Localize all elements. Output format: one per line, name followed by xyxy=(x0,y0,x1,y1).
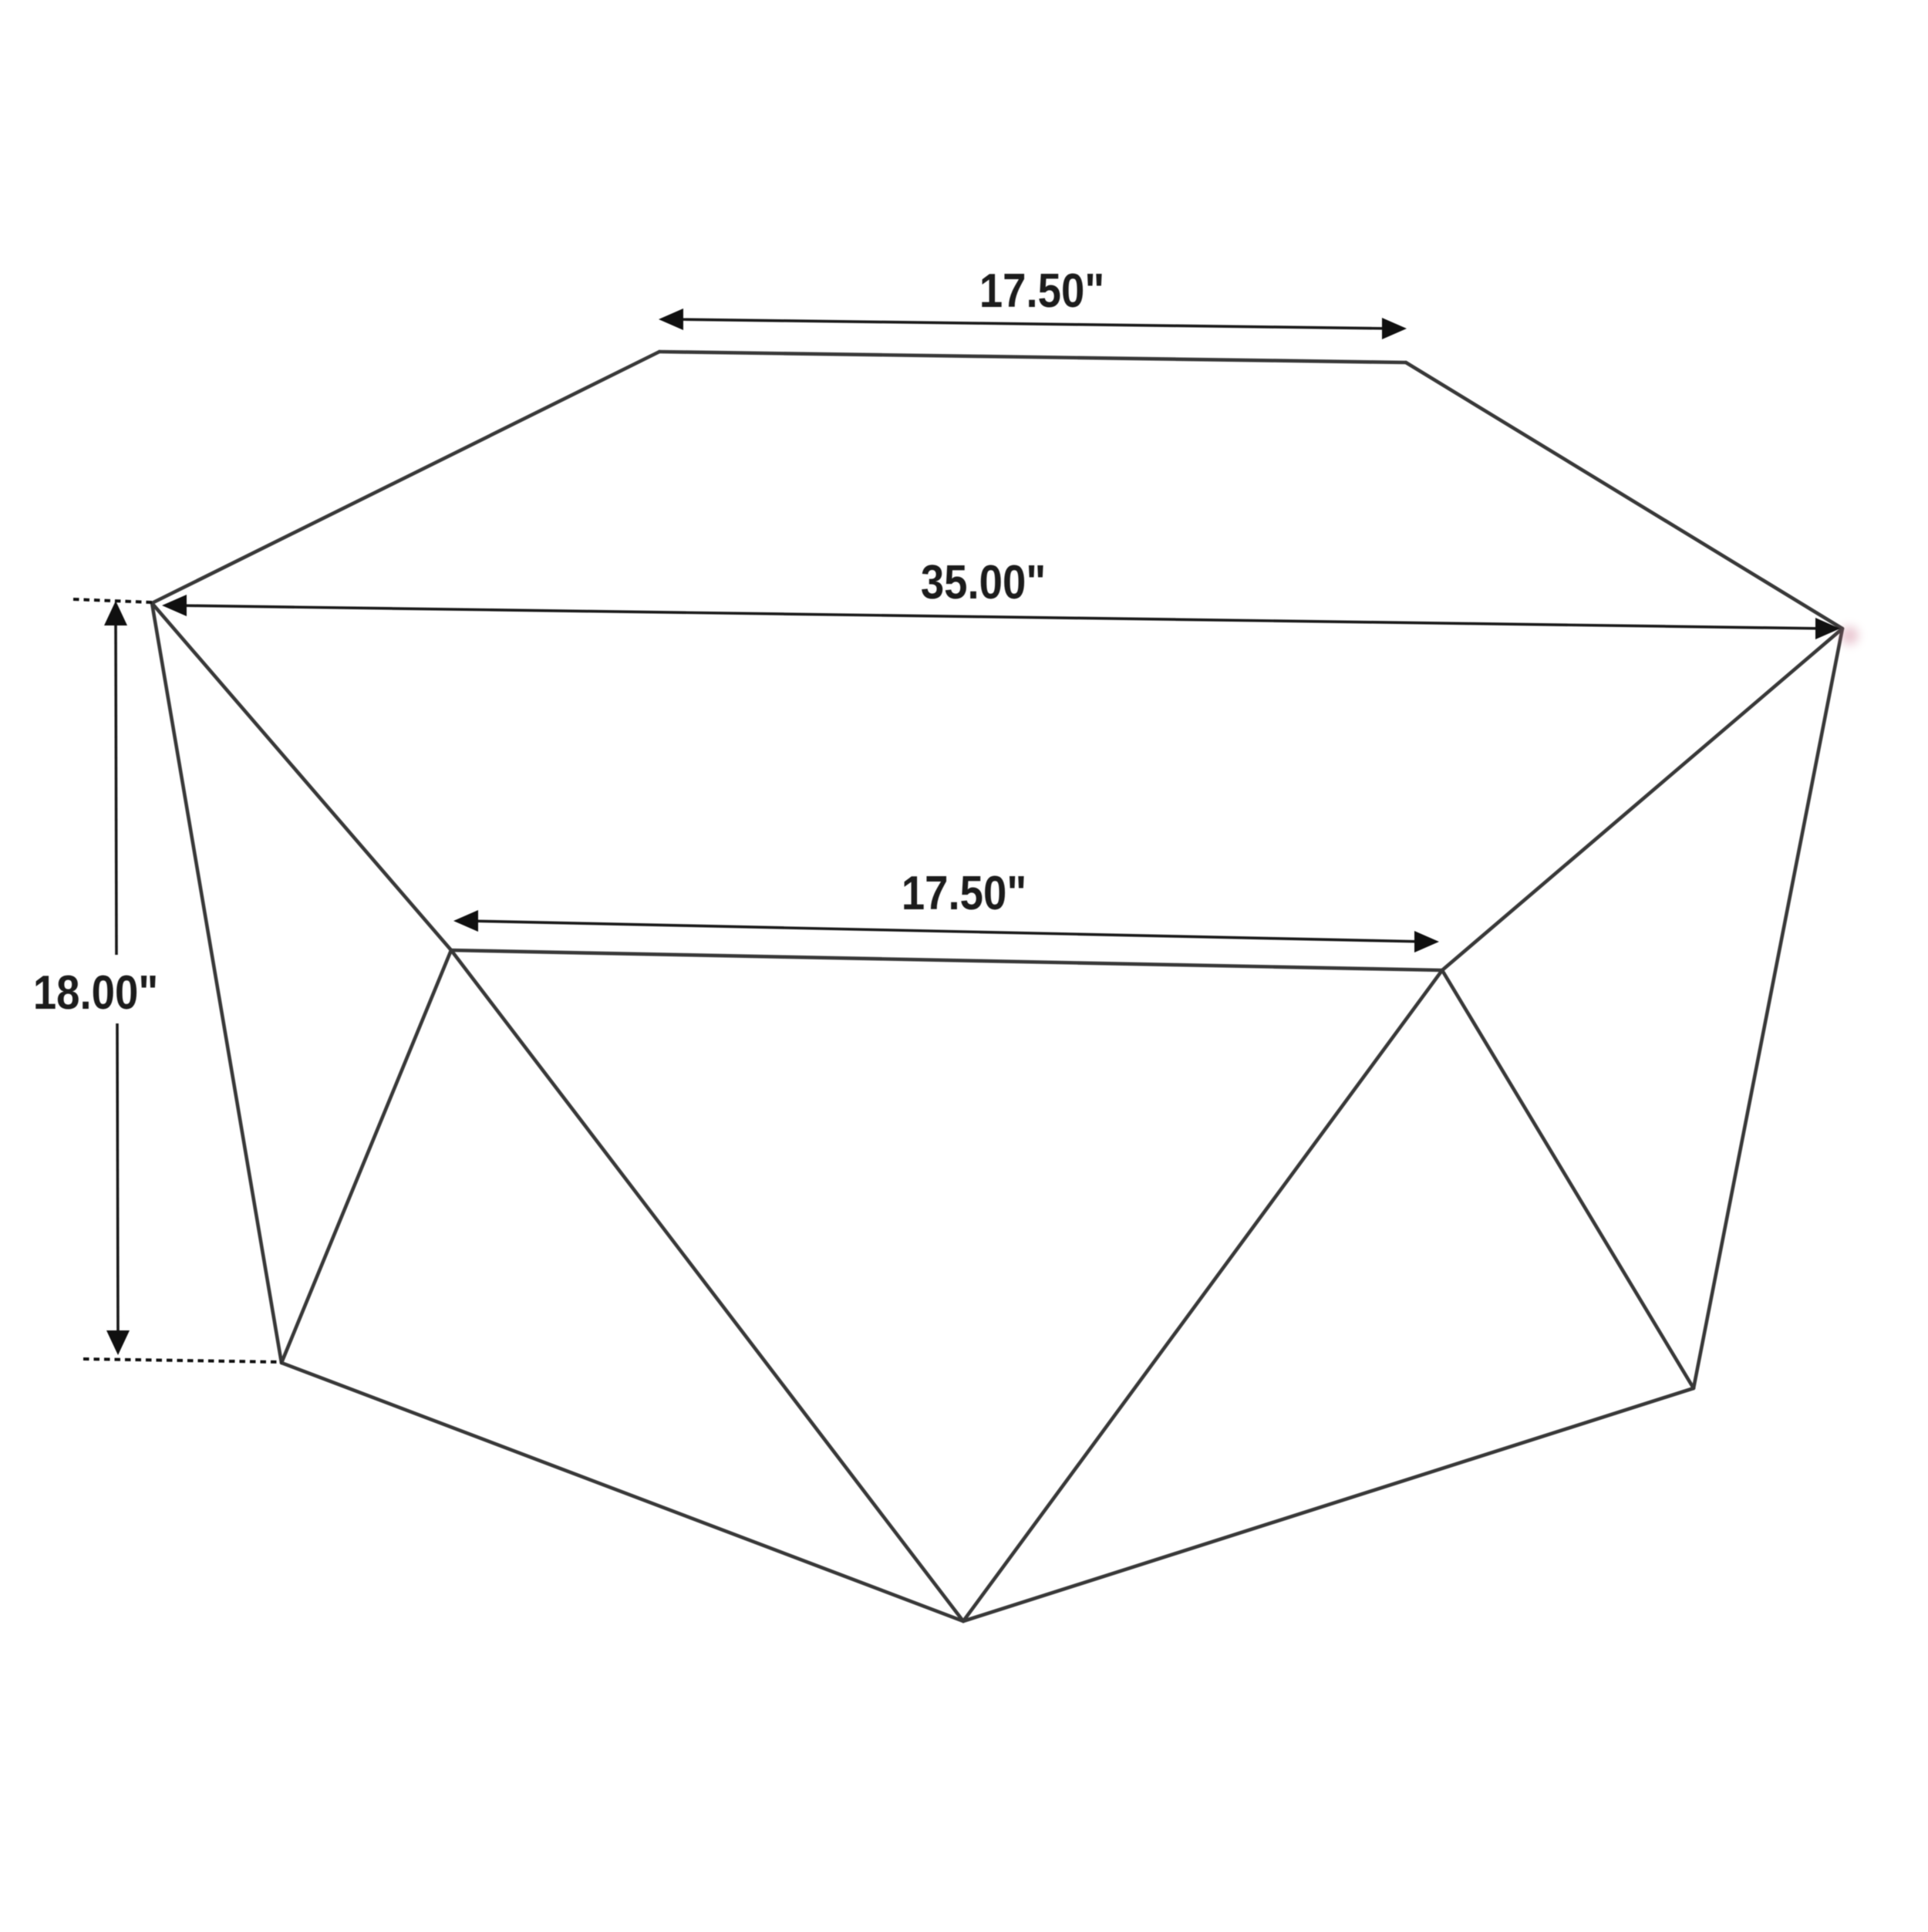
svg-text:18.00": 18.00" xyxy=(33,966,158,1020)
svg-text:35.00": 35.00" xyxy=(921,556,1046,609)
svg-text:17.50": 17.50" xyxy=(902,867,1026,920)
svg-text:17.50": 17.50" xyxy=(979,265,1104,318)
